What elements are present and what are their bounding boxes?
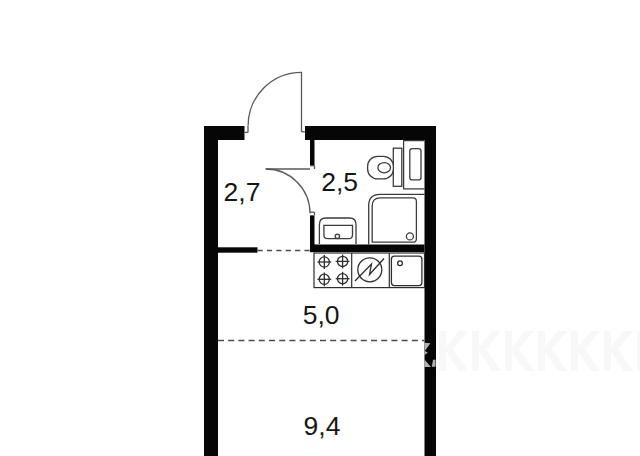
svg-text:5,0: 5,0 bbox=[303, 300, 340, 330]
svg-text:9,4: 9,4 bbox=[304, 411, 341, 441]
svg-text:2,5: 2,5 bbox=[321, 167, 358, 197]
svg-text:2,7: 2,7 bbox=[224, 177, 261, 207]
